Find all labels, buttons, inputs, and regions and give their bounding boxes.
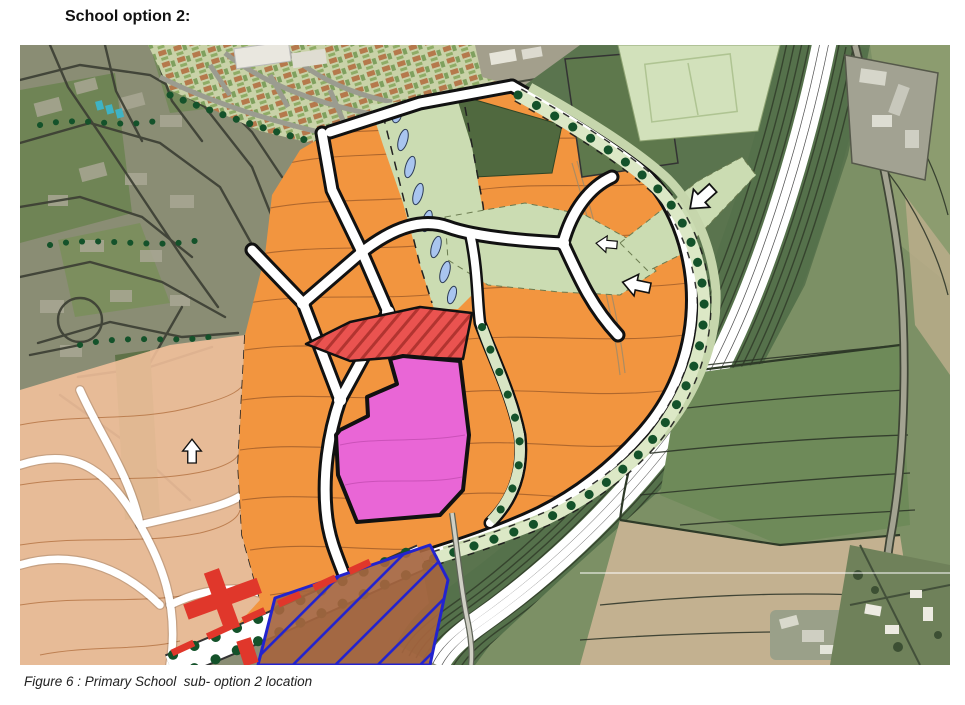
farmyard-north — [845, 55, 938, 180]
playing-field — [618, 45, 780, 141]
figure-caption: Figure 6 : Primary School sub- option 2 … — [24, 674, 312, 689]
village-corner — [830, 545, 950, 665]
map-figure — [20, 45, 950, 665]
page-title: School option 2: — [65, 8, 190, 26]
masterplan-map — [20, 45, 950, 665]
document-page: School option 2: — [0, 0, 965, 705]
